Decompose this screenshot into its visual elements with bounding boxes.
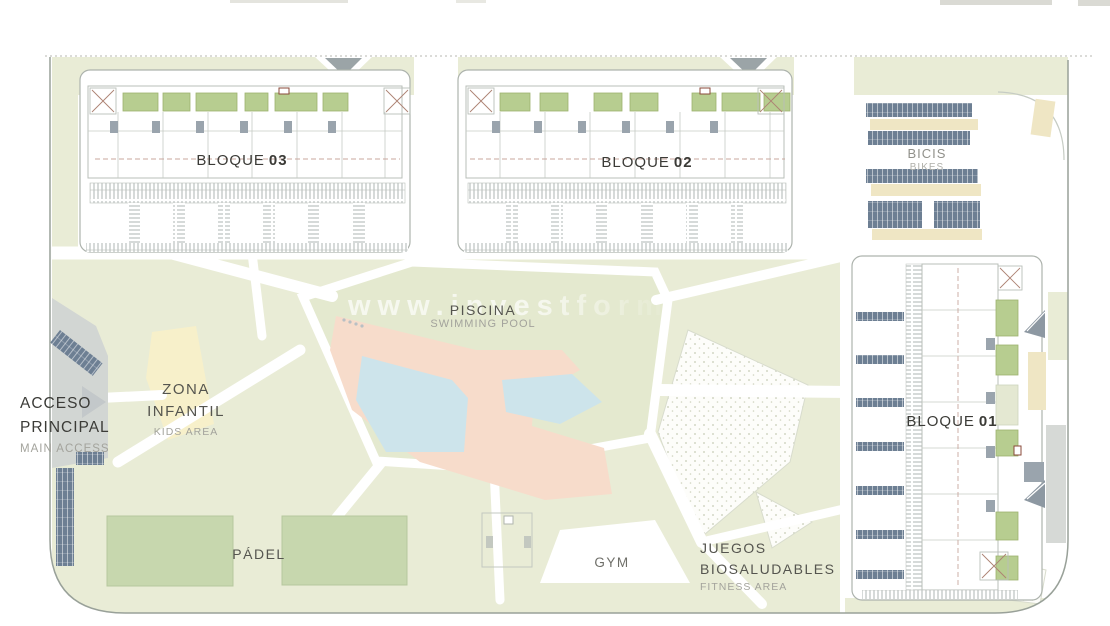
label-padel: PÁDEL — [232, 546, 285, 562]
bloque-03-name: BLOQUE — [196, 152, 265, 169]
label-bloque-01: BLOQUE01 — [906, 413, 997, 430]
terraces — [500, 93, 790, 111]
fitness-name-en: FITNESS AREA — [700, 581, 835, 593]
signage-mark — [1014, 446, 1021, 455]
bloque-01-name: BLOQUE — [906, 413, 975, 430]
pool-name-es: PISCINA — [430, 302, 535, 318]
bike-rack-row — [868, 201, 922, 228]
padel-court — [107, 516, 233, 586]
pergola-band — [90, 183, 405, 203]
bike-rack-row — [934, 201, 980, 228]
label-kids-area: ZONA INFANTIL KIDS AREA — [147, 381, 225, 438]
pergola-band — [862, 590, 1018, 599]
bloque-02-name: BLOQUE — [601, 154, 670, 171]
bike-rack-row — [866, 103, 972, 117]
label-pool: PISCINA SWIMMING POOL — [430, 302, 535, 331]
access-name-es1: ACCESO — [20, 395, 110, 413]
site-plan-canvas: www.investforma BLOQUE03 BLOQUE02 BLOQUE… — [0, 0, 1110, 626]
parking-strip-vertical — [56, 468, 74, 566]
kids-name-es2: INFANTIL — [147, 403, 225, 420]
bike-rack-row — [868, 131, 970, 145]
pergola-band — [468, 183, 786, 203]
pool-name-en: SWIMMING POOL — [430, 318, 535, 331]
kids-name-en: KIDS AREA — [147, 426, 225, 438]
fitness-name-es1: JUEGOS — [700, 540, 835, 556]
label-bloque-02: BLOQUE02 — [601, 154, 692, 171]
padel-court — [282, 516, 407, 585]
access-name-es2: PRINCIPAL — [20, 419, 110, 437]
label-gym: GYM — [594, 555, 629, 571]
bikes-name-es: BICIS — [908, 147, 947, 162]
pergola-band — [464, 243, 788, 252]
fitness-name-es2: BIOSALUDABLES — [700, 561, 835, 577]
label-main-access: ACCESO PRINCIPAL MAIN ACCESS — [20, 395, 110, 456]
top-edge-artifacts — [230, 0, 1110, 6]
pergola-band — [86, 243, 408, 252]
bloque-02-number: 02 — [674, 154, 693, 171]
terraces — [123, 93, 348, 111]
bloque-01-number: 01 — [979, 413, 998, 430]
label-bikes: BICIS BIKES — [908, 147, 947, 173]
signage-mark — [279, 88, 289, 94]
label-bloque-03: BLOQUE03 — [196, 152, 287, 169]
bloque-03-number: 03 — [269, 152, 288, 169]
signage-mark — [700, 88, 710, 94]
access-name-en: MAIN ACCESS — [20, 443, 110, 456]
bikes-name-en: BIKES — [908, 162, 947, 174]
label-fitness-area: JUEGOS BIOSALUDABLES FITNESS AREA — [700, 540, 835, 593]
kids-name-es1: ZONA — [147, 381, 225, 398]
